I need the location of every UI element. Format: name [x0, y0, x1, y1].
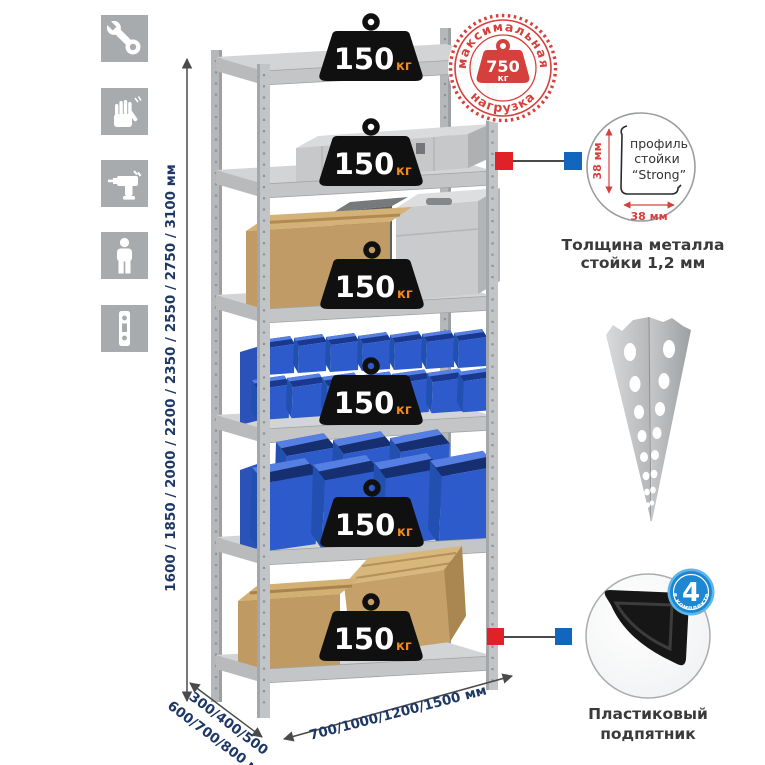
height-dimension-label: 1600 / 1850 / 2000 / 2200 / 2350 / 2550 … — [163, 164, 179, 592]
profile-caption-2: стойки 1,2 мм — [581, 254, 706, 272]
weight-unit: кг — [396, 59, 412, 74]
feature-icons-column — [101, 15, 148, 352]
weight-unit: кг — [396, 639, 412, 654]
weight-unit: кг — [396, 164, 412, 179]
profile-label-2: стойки — [634, 151, 680, 166]
profile-caption-1: Толщина металла — [562, 236, 725, 254]
foot-caption-2: подпятник — [600, 725, 696, 743]
height-dimension: 1600 / 1850 / 2000 / 2200 / 2350 / 2550 … — [163, 59, 187, 701]
weight-unit: кг — [397, 287, 413, 302]
stamp-unit: кг — [498, 74, 509, 84]
weight-150kg: 150 кг — [319, 16, 422, 81]
wrench-icon — [101, 15, 148, 62]
foot-connector — [487, 628, 572, 645]
profile-callout: 38 мм 38 мм профиль стойки “Strong” Толщ… — [562, 113, 725, 272]
weight-value: 150 — [334, 622, 395, 656]
weight-value: 150 — [334, 42, 395, 76]
profile-connector — [495, 152, 582, 170]
width-dimension-label: 700/1000/1200/1500 мм — [308, 683, 489, 744]
corner-profile-image — [606, 317, 691, 521]
weight-value: 150 — [334, 386, 395, 420]
weight-value: 150 — [334, 147, 395, 181]
rack-post-icon — [101, 305, 148, 352]
weight-unit: кг — [396, 403, 412, 418]
weight-value: 150 — [335, 270, 396, 304]
drill-icon — [101, 160, 148, 207]
profile-vertical-dim: 38 мм — [591, 142, 604, 179]
profile-horizontal-dim: 38 мм — [630, 210, 667, 223]
gloves-icon — [101, 88, 148, 135]
foot-caption-1: Пластиковый — [588, 705, 708, 723]
profile-label-3: “Strong” — [632, 167, 686, 182]
max-load-stamp: максимальная нагрузка 750 кг — [448, 13, 558, 123]
width-dimension: 700/1000/1200/1500 мм — [284, 676, 512, 744]
shelving-infographic: 1600 / 1850 / 2000 / 2200 / 2350 / 2550 … — [0, 0, 765, 765]
profile-label-1: профиль — [630, 136, 688, 151]
person-icon — [101, 232, 148, 279]
foot-callout: 4 в комплекте Пластиковый подпятник — [586, 569, 715, 744]
weight-value: 150 — [335, 508, 396, 542]
quantity-badge: 4 в комплекте — [668, 569, 715, 616]
weight-unit: кг — [397, 525, 413, 540]
infographic-canvas: 1600 / 1850 / 2000 / 2200 / 2350 / 2550 … — [0, 0, 765, 765]
